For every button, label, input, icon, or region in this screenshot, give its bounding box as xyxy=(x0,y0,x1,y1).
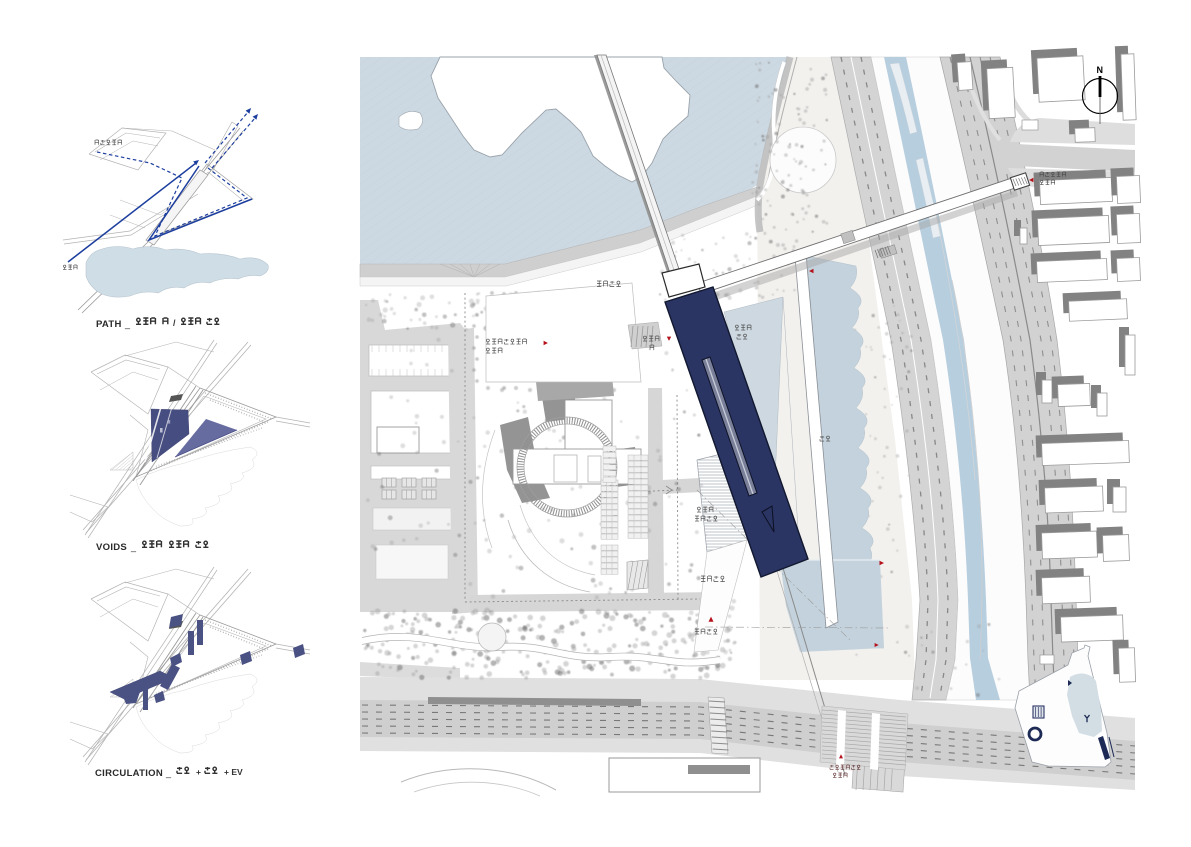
svg-text:+: + xyxy=(196,767,201,777)
svg-text:N: N xyxy=(1097,65,1104,75)
svg-text:PATH: PATH xyxy=(96,319,122,330)
svg-text:_: _ xyxy=(130,542,137,552)
svg-text:_: _ xyxy=(124,319,131,329)
svg-text:CIRCULATION: CIRCULATION xyxy=(95,768,163,779)
svg-text:+ EV: + EV xyxy=(224,767,243,777)
svg-text:VOIDS: VOIDS xyxy=(96,542,127,553)
svg-text:_: _ xyxy=(165,768,172,778)
